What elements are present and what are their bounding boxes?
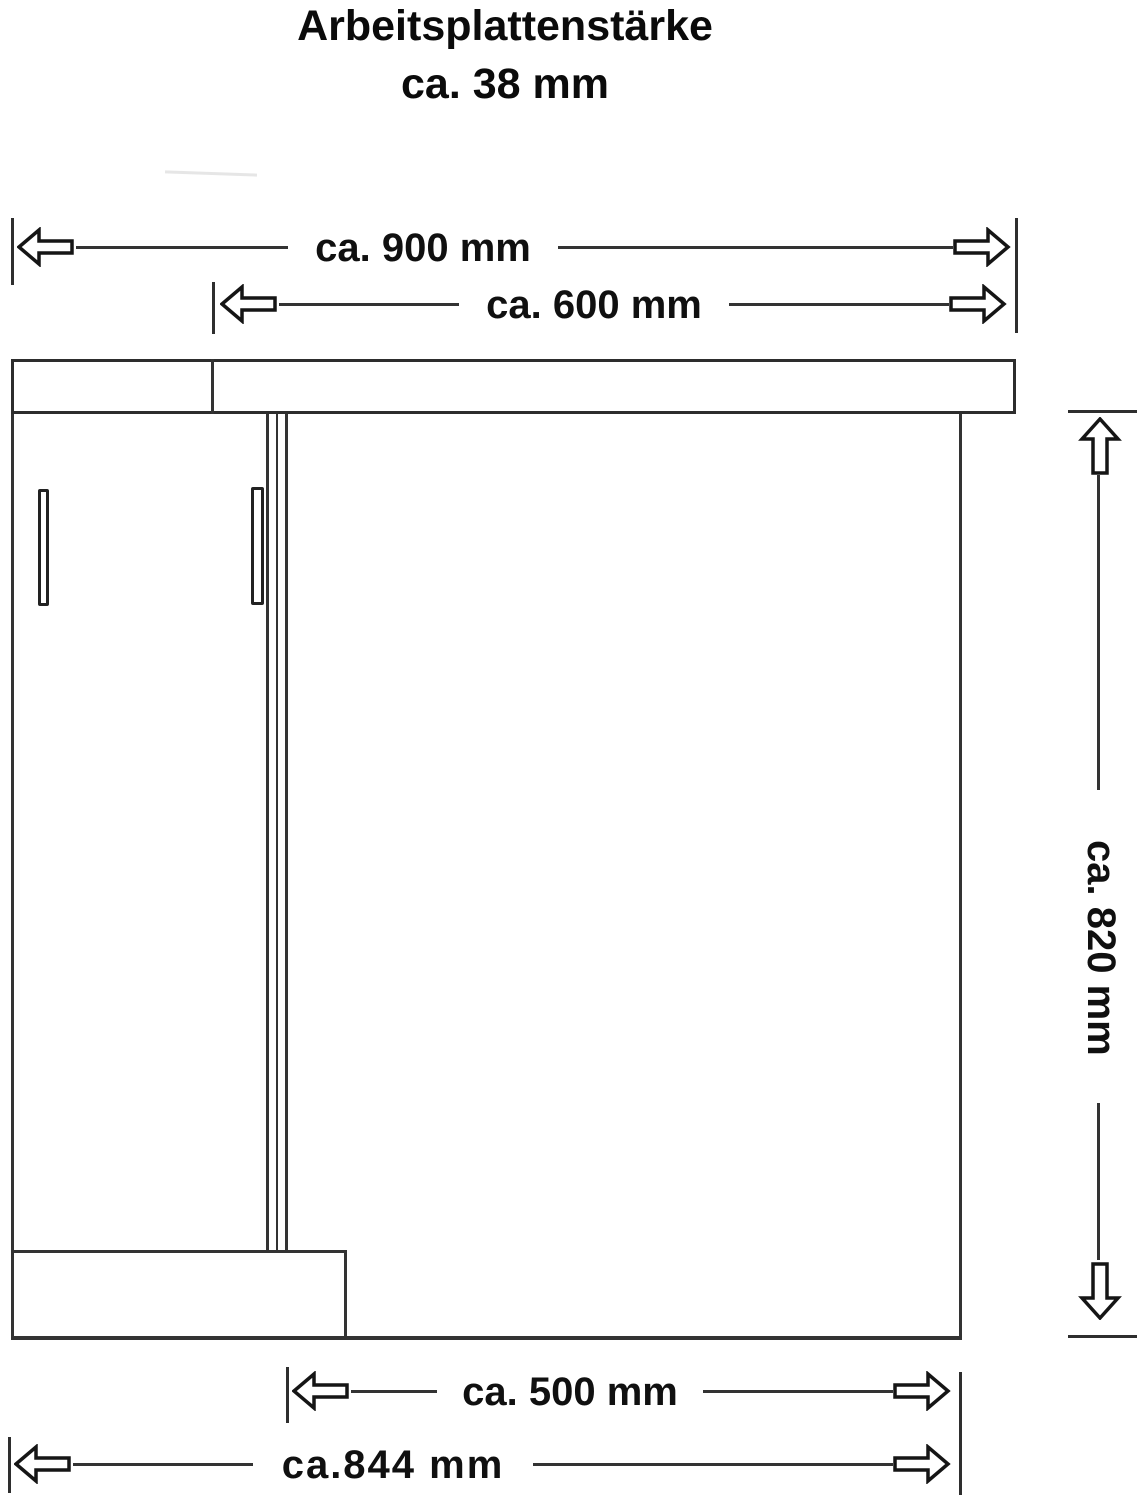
dim844-left-tick	[8, 1437, 11, 1493]
diagram-title-line1: Arbeitsplattenstärke	[0, 2, 1010, 51]
arrow-left-icon	[220, 284, 278, 324]
plinth-right-edge	[344, 1250, 347, 1340]
dim844-line-right	[533, 1463, 893, 1466]
dim900-600-right-tick	[1015, 218, 1018, 333]
dim900-left-tick	[11, 218, 14, 285]
dim500-line-left	[351, 1390, 437, 1393]
worktop-outline	[11, 359, 1016, 414]
dim500-line-right	[703, 1390, 893, 1393]
arrow-left-icon	[14, 1444, 72, 1484]
side-panel-right-edge	[959, 414, 962, 1340]
dim820-line-bottom	[1097, 1103, 1100, 1260]
worktop-divider-line	[211, 359, 214, 414]
arrow-down-icon	[1078, 1262, 1122, 1320]
faded-leader-line	[165, 170, 257, 176]
dim500-label: ca. 500 mm	[437, 1368, 703, 1416]
arrow-up-icon	[1078, 417, 1122, 475]
dim600-label: ca. 600 mm	[459, 281, 729, 329]
dim900-label: ca. 900 mm	[288, 224, 558, 272]
arrow-left-icon	[17, 227, 75, 267]
corner-post-line	[276, 414, 278, 1252]
dim600-line-right	[729, 303, 949, 306]
arrow-left-icon	[292, 1371, 350, 1411]
dim500-left-tick	[286, 1367, 289, 1423]
cabinet-left-edge	[11, 414, 14, 1340]
cabinet-bottom-line	[11, 1336, 962, 1340]
dim820-label: ca. 820 mm	[1072, 793, 1130, 1103]
dim500-844-right-tick	[959, 1372, 962, 1495]
door-right-edge	[266, 414, 269, 1252]
door-handle-left	[38, 489, 49, 606]
dim600-line-left	[279, 303, 459, 306]
dim900-line-left	[76, 246, 288, 249]
arrow-right-icon	[953, 227, 1011, 267]
diagram-title-line2: ca. 38 mm	[0, 60, 1010, 109]
dim844-line-left	[73, 1463, 253, 1466]
dim900-line-right	[558, 246, 953, 249]
dim844-label: ca.844 mm	[253, 1441, 533, 1489]
arrow-right-icon	[893, 1371, 951, 1411]
side-panel-left-edge	[285, 414, 288, 1252]
door-bottom-line	[11, 1250, 347, 1253]
dim820-bottom-tick	[1068, 1335, 1137, 1338]
door-handle-right	[251, 487, 264, 605]
arrow-right-icon	[893, 1444, 951, 1484]
dim600-left-tick	[212, 282, 215, 334]
dim820-top-tick	[1068, 410, 1137, 413]
dim820-line-top	[1097, 475, 1100, 790]
arrow-right-icon	[949, 284, 1007, 324]
cabinet-dimension-diagram: Arbeitsplattenstärke ca. 38 mm ca. 900 m…	[0, 0, 1139, 1500]
